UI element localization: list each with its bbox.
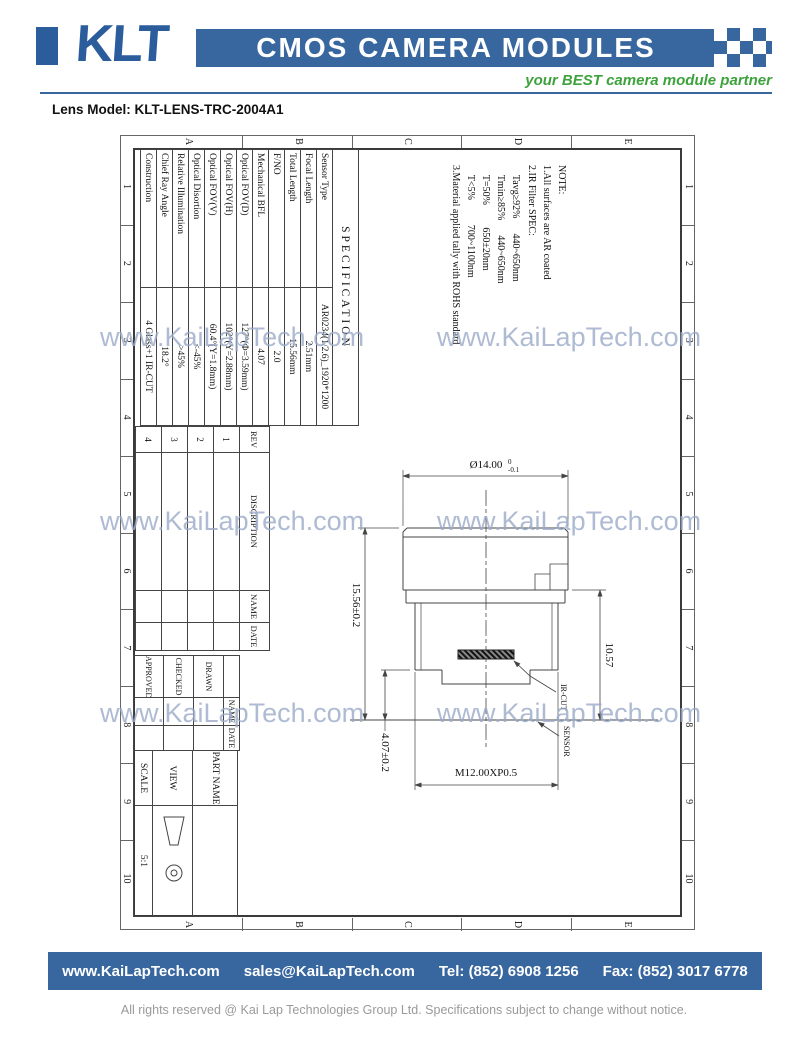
spec-value: AR0234(1/2.6)_1920*1200 — [317, 288, 333, 426]
note-line: Tavg≥92% 440~650nm — [508, 165, 523, 344]
zone-tick — [120, 225, 133, 226]
spec-value: 60.4°(Y=1.8mm) — [205, 288, 221, 426]
specification-table: SPECIFICATION Sensor TypeAR0234(1/2.6)_1… — [140, 149, 359, 426]
empty-cell — [214, 623, 240, 651]
page-title: CMOS CAMERA MODULES — [196, 29, 716, 67]
zone-row-label: B — [291, 918, 305, 931]
drawing-note: NOTE:1.All surfaces are AR coated2.IR Fi… — [447, 165, 569, 344]
spec-table-title: SPECIFICATION — [333, 150, 359, 426]
zone-tick — [352, 918, 353, 931]
spec-label: Optical Disortion — [189, 150, 205, 288]
spec-row: Relative Illumination>45% — [173, 150, 189, 426]
title-block: PART NAME VIEW SCALE 5:1 — [133, 750, 238, 917]
zone-row-label: B — [291, 135, 305, 148]
spec-row: Optical Disortion<-45% — [189, 150, 205, 426]
empty-cell — [194, 698, 224, 726]
zone-tick — [571, 135, 572, 148]
lens-inner-seats — [535, 564, 568, 590]
lens-thread-section — [406, 603, 565, 670]
empty-cell — [194, 726, 224, 751]
zone-column-label: 10 — [120, 870, 133, 888]
spec-row: Construction4 Glass+1 IR-CUT — [141, 150, 157, 426]
zone-column-label: 8 — [682, 716, 695, 734]
spec-value: 15.56mm — [285, 288, 301, 426]
zone-row-label: C — [401, 135, 415, 148]
rev-header-description: DISCRIPTION — [240, 453, 270, 591]
ir-cut-label: IR-CUT — [559, 684, 568, 711]
spec-value: 2.51mm — [301, 288, 317, 426]
approval-header-name: NAME — [224, 698, 240, 726]
spec-value: 102°(Y=2.88mm) — [221, 288, 237, 426]
zone-tick — [682, 456, 695, 457]
approval-role-label: CHECKED — [164, 656, 194, 698]
empty-cell — [136, 623, 162, 651]
spec-label: Sensor Type — [317, 150, 333, 288]
scale-label: SCALE — [134, 751, 153, 806]
checker-pattern-decoration — [714, 28, 772, 67]
empty-cell — [188, 591, 214, 623]
spec-row: Optical FOV(H)102°(Y=2.88mm) — [221, 150, 237, 426]
zone-tick — [682, 533, 695, 534]
zone-tick — [682, 609, 695, 610]
spec-value: 18.2° — [157, 288, 173, 426]
zone-column-label: 8 — [120, 716, 133, 734]
zone-tick — [242, 918, 243, 931]
footer-email: sales@KaiLapTech.com — [244, 963, 415, 980]
spec-row: Optical FOV(D)127°(Φ=3.59mm) — [237, 150, 253, 426]
approval-table-body: DRAWNCHECKEDAPPROVED — [134, 656, 224, 751]
rev-row: 1 — [214, 427, 240, 651]
zone-column-label: 3 — [682, 331, 695, 349]
spec-row: Mechanical BFL4.07 — [253, 150, 269, 426]
dim-total-length: 15.56±0.2 — [350, 583, 362, 628]
spec-label: Mechanical BFL — [253, 150, 269, 288]
note-line: T<5% 700~1100nm — [463, 165, 478, 344]
zone-row-label: E — [620, 135, 634, 148]
zone-tick — [682, 302, 695, 303]
copyright-notice: All rights reserved @ Kai Lap Technologi… — [0, 1003, 808, 1017]
spec-table-body: Sensor TypeAR0234(1/2.6)_1920*1200Focal … — [141, 150, 333, 426]
dim-rear-to-sensor: 4.07±0.2 — [379, 733, 391, 772]
logo-block — [36, 27, 58, 65]
zone-column-label: 4 — [120, 408, 133, 426]
note-line: 1.All surfaces are AR coated — [539, 165, 554, 344]
zone-tick — [682, 763, 695, 764]
spec-row: Total Length15.56mm — [285, 150, 301, 426]
zone-tick — [352, 135, 353, 148]
lens-flange — [406, 590, 565, 603]
zone-row-label: D — [510, 135, 524, 148]
view-value — [153, 806, 193, 917]
zone-tick — [120, 686, 133, 687]
rev-header-name: NAME — [240, 591, 270, 623]
empty-cell — [134, 698, 164, 726]
spec-row: F/NO2.0 — [269, 150, 285, 426]
zone-row-label: D — [510, 918, 524, 931]
part-name-value — [193, 806, 238, 917]
tagline: your BEST camera module partner — [525, 72, 772, 89]
rev-header-date: DATE — [240, 623, 270, 651]
zone-tick — [120, 609, 133, 610]
zone-tick — [682, 225, 695, 226]
zone-tick — [120, 840, 133, 841]
zone-tick — [120, 763, 133, 764]
scale-value: 5:1 — [134, 806, 153, 917]
zone-column-label: 4 — [682, 408, 695, 426]
zone-row-label: C — [401, 918, 415, 931]
note-line: T=50% 650±20nm — [478, 165, 493, 344]
zone-column-label: 5 — [120, 485, 133, 503]
rev-row: 2 — [188, 427, 214, 651]
header-rule — [40, 92, 772, 94]
spec-value: 127°(Φ=3.59mm) — [237, 288, 253, 426]
zone-column-label: 1 — [682, 177, 695, 195]
zone-row-label: A — [181, 918, 195, 931]
spec-row: Optical FOV(V)60.4°(Y=1.8mm) — [205, 150, 221, 426]
empty-cell — [136, 453, 162, 591]
rev-number: 1 — [214, 427, 240, 453]
zone-tick — [682, 379, 695, 380]
zone-tick — [242, 135, 243, 148]
footer-website: www.KaiLapTech.com — [62, 963, 220, 980]
approval-role-label: APPROVED — [134, 656, 164, 698]
spec-label: F/NO — [269, 150, 285, 288]
rev-row: 4 — [136, 427, 162, 651]
zone-column-label: 10 — [682, 870, 695, 888]
zone-tick — [682, 840, 695, 841]
zone-tick — [461, 918, 462, 931]
approval-role-label: DRAWN — [194, 656, 224, 698]
view-label: VIEW — [153, 751, 193, 806]
rev-table-body: 1234 — [136, 427, 240, 651]
spec-value: 4.07 — [253, 288, 269, 426]
spec-label: Optical FOV(V) — [205, 150, 221, 288]
zone-row-label: A — [181, 135, 195, 148]
zone-column-label: 9 — [682, 793, 695, 811]
approval-blank-cell — [224, 656, 240, 698]
zone-column-label: 2 — [120, 254, 133, 272]
spec-label: Relative Illumination — [173, 150, 189, 288]
dim-thread-spec: M12.00XP0.5 — [455, 767, 518, 779]
zone-tick — [120, 456, 133, 457]
zone-column-label: 6 — [120, 562, 133, 580]
empty-cell — [136, 591, 162, 623]
zone-column-label: 5 — [682, 485, 695, 503]
approval-row: APPROVED — [134, 656, 164, 751]
spec-label: Chief Ray Angle — [157, 150, 173, 288]
note-line: NOTE: — [554, 165, 569, 344]
rev-number: 3 — [162, 427, 188, 453]
spec-value: 4 Glass+1 IR-CUT — [141, 288, 157, 426]
klt-logo: KLT — [74, 14, 169, 74]
zone-tick — [461, 135, 462, 148]
rev-header-rev: REV — [240, 427, 270, 453]
empty-cell — [214, 591, 240, 623]
spec-value: >45% — [173, 288, 189, 426]
spec-label: Optical FOV(H) — [221, 150, 237, 288]
rev-number: 2 — [188, 427, 214, 453]
spec-row: Focal Length2.51mm — [301, 150, 317, 426]
ir-cut-leader — [514, 661, 556, 692]
dim-front-diameter-tol-upper: 0 — [508, 458, 512, 466]
approval-row: CHECKED — [164, 656, 194, 751]
empty-cell — [162, 453, 188, 591]
zone-column-label: 3 — [120, 331, 133, 349]
zone-tick — [571, 918, 572, 931]
sensor-label: SENSOR — [562, 726, 571, 757]
dim-flange-to-sensor: 10.57 — [603, 643, 615, 668]
empty-cell — [162, 591, 188, 623]
note-line: Tmin≥85% 440~650nm — [493, 165, 508, 344]
part-name-label: PART NAME — [193, 751, 238, 806]
zone-tick — [120, 533, 133, 534]
approval-table: NAME DATE DRAWNCHECKEDAPPROVED — [133, 655, 240, 751]
footer-tel: Tel: (852) 6908 1256 — [439, 963, 579, 980]
empty-cell — [214, 453, 240, 591]
lens-model-label: Lens Model: KLT-LENS-TRC-2004A1 — [52, 102, 284, 117]
footer-fax: Fax: (852) 3017 6778 — [603, 963, 748, 980]
rev-row: 3 — [162, 427, 188, 651]
empty-cell — [134, 726, 164, 751]
zone-column-label: 1 — [120, 177, 133, 195]
lens-front-barrel — [403, 528, 568, 590]
note-line: 2.IR Filter SPEC: — [523, 165, 538, 344]
spec-label: Focal Length — [301, 150, 317, 288]
drawing-sheet: 1122334455667788991010EEDDCCBBAA NOTE:1.… — [120, 135, 695, 930]
sensor-leader — [538, 722, 559, 736]
rev-number: 4 — [136, 427, 162, 453]
approval-row: DRAWN — [194, 656, 224, 751]
spec-row: Sensor TypeAR0234(1/2.6)_1920*1200 — [317, 150, 333, 426]
spec-label: Optical FOV(D) — [237, 150, 253, 288]
lens-drawing: IR-CUT SENSOR Ø14.00 0 -0.1 15.56±0.2 4.… — [350, 440, 680, 840]
zone-tick — [120, 379, 133, 380]
ir-cut-filter — [458, 650, 514, 659]
spec-label: Total Length — [285, 150, 301, 288]
spec-row: Chief Ray Angle18.2° — [157, 150, 173, 426]
footer-bar: www.KaiLapTech.com sales@KaiLapTech.com … — [48, 952, 762, 990]
zone-column-label: 9 — [120, 793, 133, 811]
revision-table: REV DISCRIPTION NAME DATE 1234 — [135, 426, 270, 651]
third-angle-projection-icon — [161, 811, 187, 911]
empty-cell — [188, 623, 214, 651]
note-line: 3.Material applied tally with ROHS stand… — [447, 165, 462, 344]
zone-tick — [682, 686, 695, 687]
zone-tick — [120, 302, 133, 303]
empty-cell — [188, 453, 214, 591]
zone-column-label: 6 — [682, 562, 695, 580]
spec-value: 2.0 — [269, 288, 285, 426]
dim-front-diameter: Ø14.00 — [470, 459, 503, 471]
empty-cell — [164, 698, 194, 726]
zone-column-label: 2 — [682, 254, 695, 272]
zone-row-label: E — [620, 918, 634, 931]
zone-column-label: 7 — [120, 639, 133, 657]
spec-label: Construction — [141, 150, 157, 288]
empty-cell — [164, 726, 194, 751]
empty-cell — [162, 623, 188, 651]
dim-front-diameter-tol-lower: -0.1 — [508, 466, 520, 474]
approval-header-date: DATE — [224, 726, 240, 751]
zone-column-label: 7 — [682, 639, 695, 657]
spec-value: <-45% — [189, 288, 205, 426]
